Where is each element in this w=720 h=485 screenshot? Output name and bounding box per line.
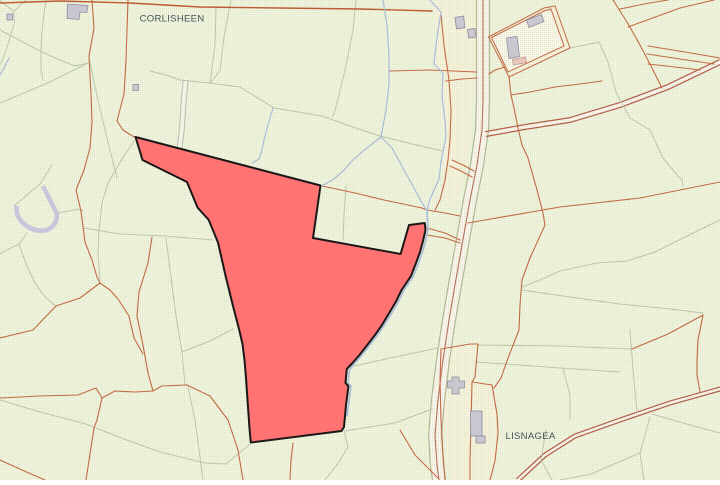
svg-text:CORLISHEEN: CORLISHEEN [140, 14, 205, 25]
svg-text:LISNAGEA: LISNAGEA [506, 431, 556, 442]
